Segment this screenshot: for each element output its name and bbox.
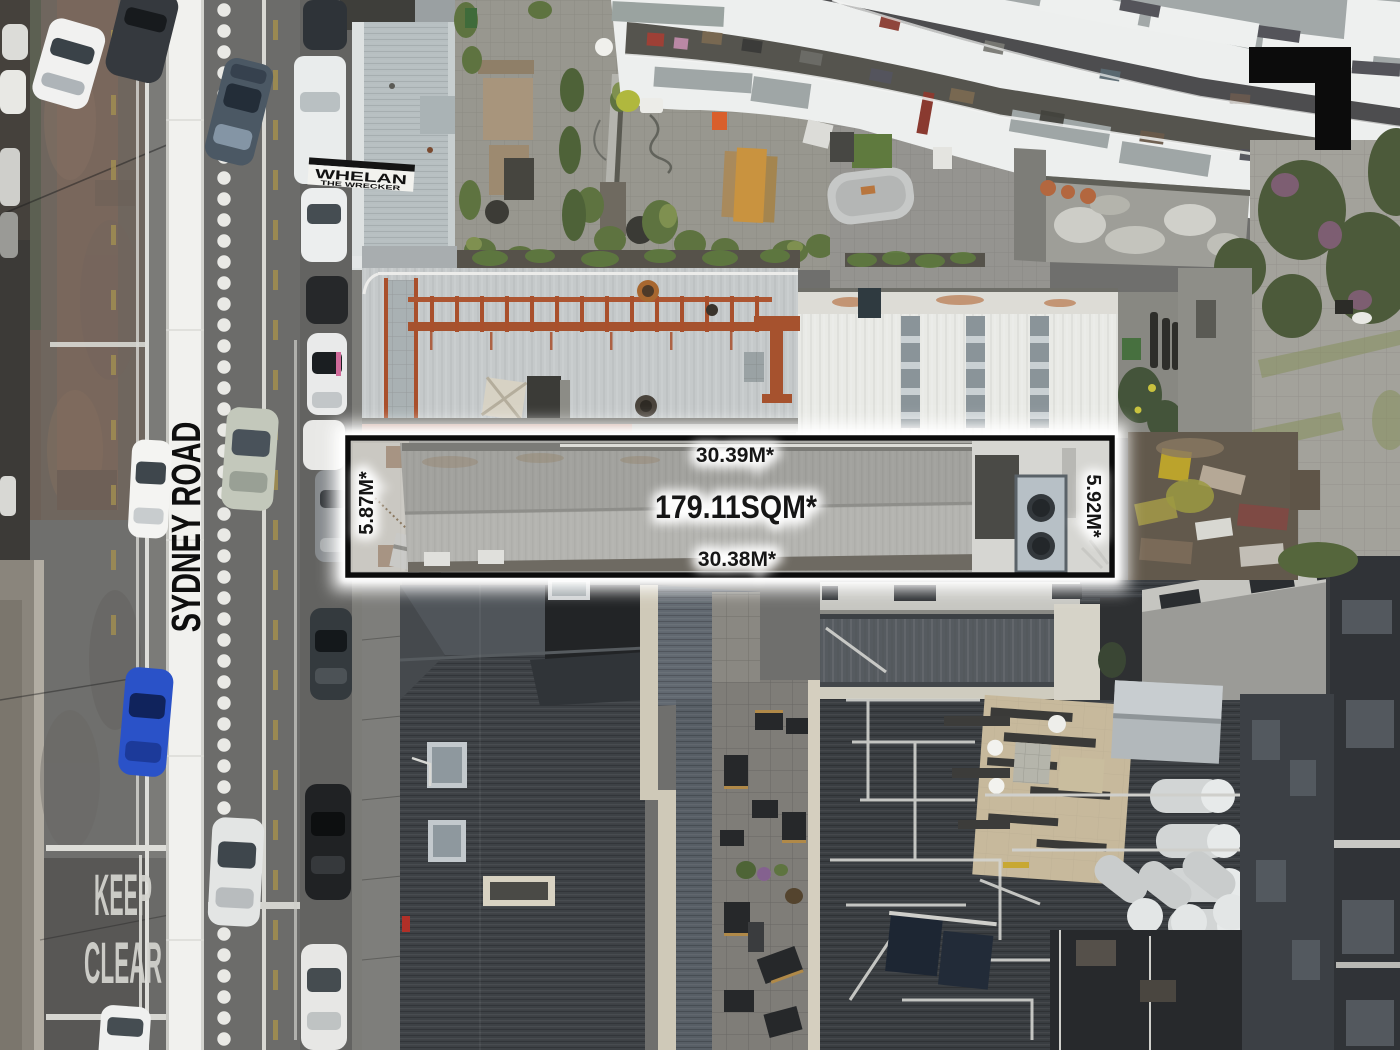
svg-text:5.92M*: 5.92M* bbox=[1082, 474, 1104, 538]
svg-text:179.11SQM*: 179.11SQM* bbox=[655, 489, 817, 525]
svg-text:KEEP: KEEP bbox=[94, 863, 152, 928]
svg-text:CLEAR: CLEAR bbox=[84, 931, 162, 996]
svg-text:5.87M*: 5.87M* bbox=[356, 471, 378, 535]
svg-text:30.39M*: 30.39M* bbox=[696, 444, 775, 467]
svg-text:30.38M*: 30.38M* bbox=[698, 548, 777, 571]
